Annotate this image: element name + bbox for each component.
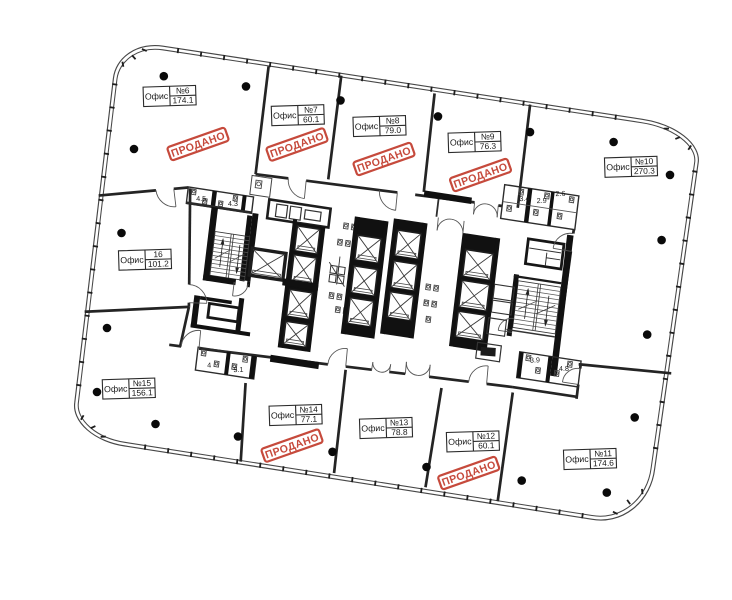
svg-text:Офис: Офис xyxy=(448,436,472,447)
svg-text:Офис: Офис xyxy=(145,91,169,102)
svg-text:Офис: Офис xyxy=(450,137,474,148)
svg-text:79.0: 79.0 xyxy=(385,125,402,136)
svg-text:270.3: 270.3 xyxy=(634,165,656,176)
svg-text:156.1: 156.1 xyxy=(132,387,154,398)
svg-text:Офис: Офис xyxy=(273,110,297,121)
svg-text:174.1: 174.1 xyxy=(172,95,194,106)
svg-text:5.1: 5.1 xyxy=(233,365,243,374)
svg-text:4.3: 4.3 xyxy=(228,199,238,208)
svg-text:Офис: Офис xyxy=(355,121,379,132)
svg-text:77.1: 77.1 xyxy=(301,414,318,425)
svg-text:Офис: Офис xyxy=(271,410,295,421)
svg-text:76.3: 76.3 xyxy=(480,141,497,152)
svg-text:Офис: Офис xyxy=(104,383,128,394)
svg-text:78.8: 78.8 xyxy=(391,427,408,438)
svg-text:4: 4 xyxy=(207,360,211,369)
svg-text:Офис: Офис xyxy=(606,162,630,173)
svg-text:60.1: 60.1 xyxy=(303,114,320,125)
svg-text:3.4: 3.4 xyxy=(519,194,529,203)
svg-text:101.2: 101.2 xyxy=(148,258,170,269)
svg-text:2.9: 2.9 xyxy=(536,196,546,205)
svg-text:4.5: 4.5 xyxy=(196,194,206,203)
svg-text:Офис: Офис xyxy=(120,255,144,266)
svg-text:Офис: Офис xyxy=(565,454,589,465)
svg-text:3.9: 3.9 xyxy=(530,355,540,364)
svg-text:60.1: 60.1 xyxy=(478,440,495,451)
svg-text:2.6: 2.6 xyxy=(555,189,565,198)
svg-text:174.6: 174.6 xyxy=(593,458,615,469)
svg-text:Офис: Офис xyxy=(361,423,385,434)
svg-text:4.8: 4.8 xyxy=(559,364,569,373)
